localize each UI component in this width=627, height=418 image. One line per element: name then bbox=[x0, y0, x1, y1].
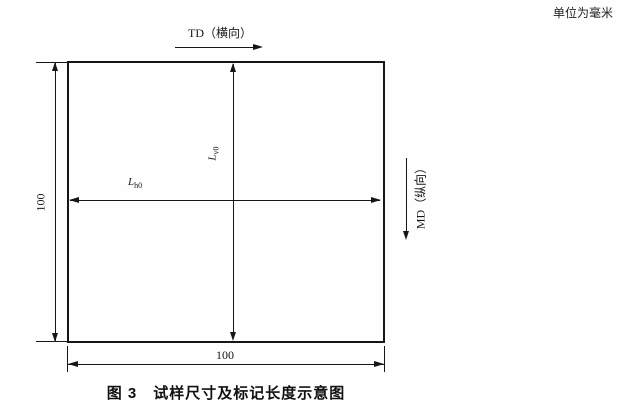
gauge-h-arrowhead-left-icon bbox=[69, 197, 79, 203]
gauge-v-symbol: L bbox=[207, 154, 219, 160]
gauge-h-label: Lh0 bbox=[128, 177, 142, 190]
width-dim-line bbox=[68, 364, 385, 365]
height-dim-line bbox=[55, 63, 56, 341]
width-dim-extension-right bbox=[384, 346, 385, 372]
width-dim-value: 100 bbox=[195, 349, 255, 361]
specimen-box bbox=[67, 61, 385, 343]
td-axis-arrow-line bbox=[175, 47, 257, 48]
gauge-line-vertical bbox=[233, 64, 234, 334]
figure-canvas: 单位为毫米 TD（横向） Lv0 Lh0 100 100 MD（纵向） 图 3 … bbox=[0, 0, 627, 418]
width-dim-extension-left bbox=[67, 346, 68, 372]
width-dim-arrowhead-right-icon bbox=[374, 361, 384, 367]
gauge-v-arrowhead-down-icon bbox=[230, 332, 236, 341]
md-arrowhead-down-icon bbox=[403, 231, 409, 240]
td-arrowhead-right-icon bbox=[253, 44, 263, 50]
height-dim-value: 100 bbox=[35, 187, 50, 219]
md-axis-arrow-line bbox=[406, 158, 407, 232]
gauge-v-arrowhead-up-icon bbox=[230, 63, 236, 72]
height-dim-arrowhead-up-icon bbox=[52, 62, 58, 71]
unit-note: 单位为毫米 bbox=[553, 4, 613, 21]
gauge-v-subscript: v0 bbox=[212, 146, 221, 154]
md-axis-label: MD（纵向） bbox=[415, 154, 430, 238]
td-axis-label: TD（横向） bbox=[176, 27, 264, 39]
gauge-v-label: Lv0 bbox=[208, 138, 223, 170]
figure-caption: 图 3 试样尺寸及标记长度示意图 bbox=[0, 382, 452, 403]
gauge-h-subscript: h0 bbox=[134, 181, 142, 190]
width-dim-arrowhead-left-icon bbox=[68, 361, 78, 367]
gauge-h-arrowhead-right-icon bbox=[371, 197, 381, 203]
gauge-line-horizontal bbox=[70, 200, 380, 201]
height-dim-arrowhead-down-icon bbox=[52, 333, 58, 342]
